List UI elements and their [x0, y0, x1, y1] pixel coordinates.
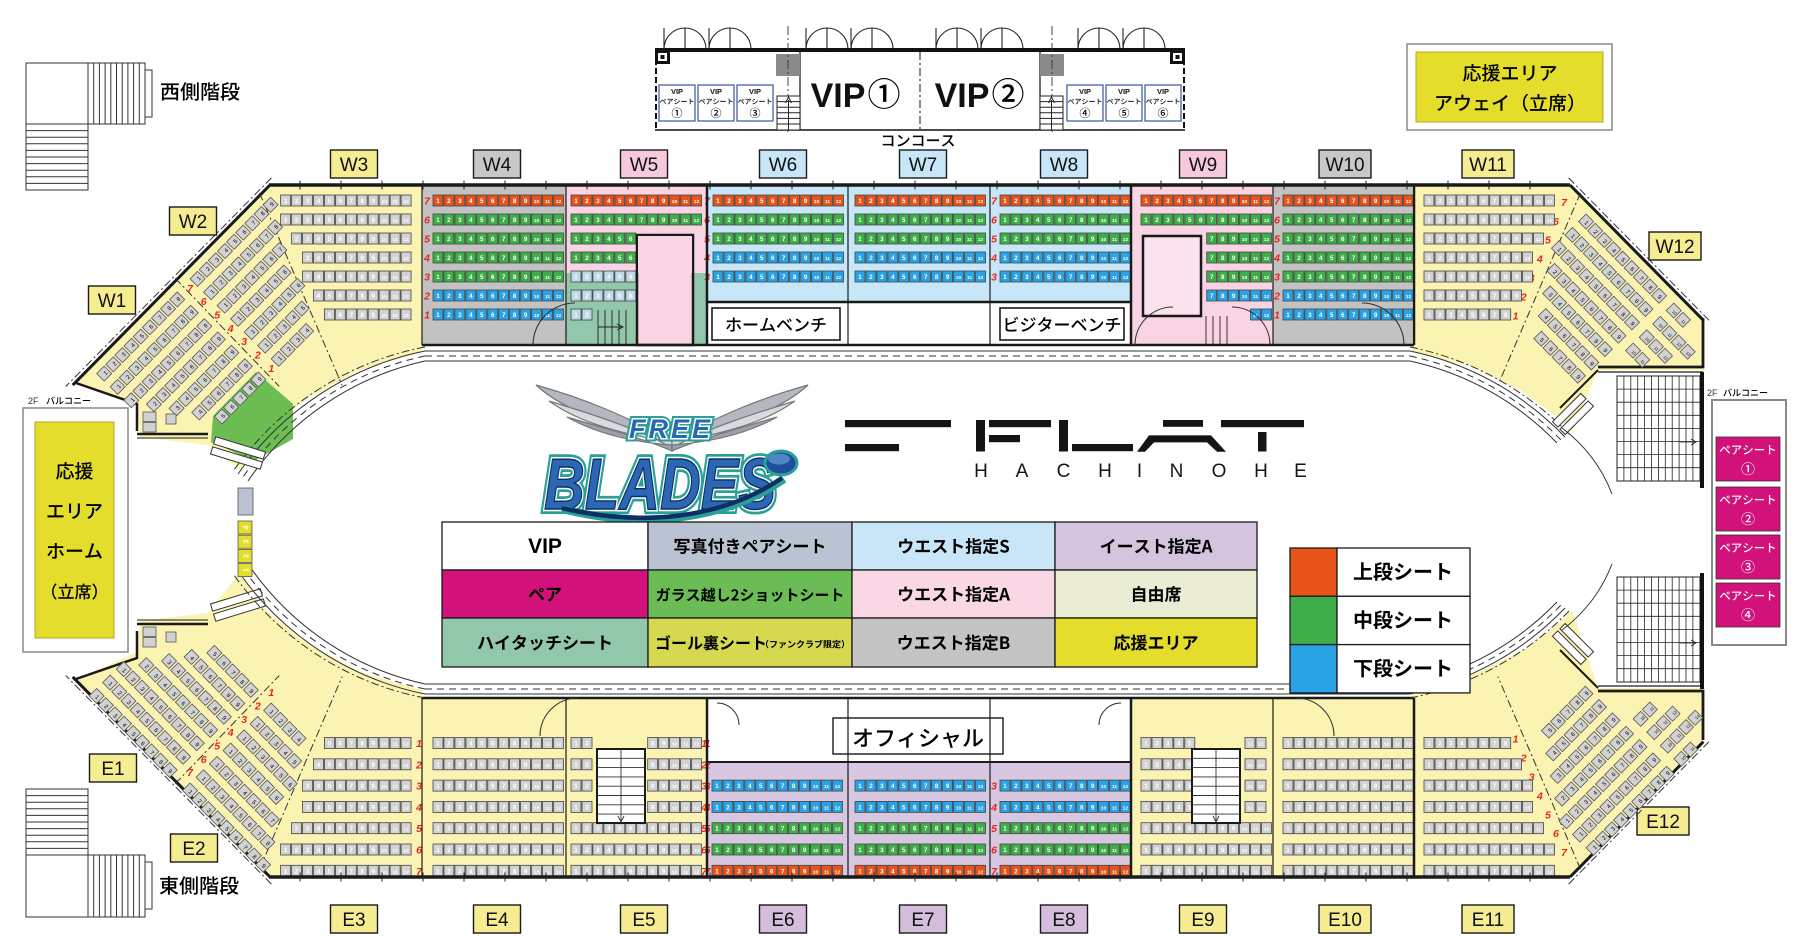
- svg-text:5: 5: [618, 868, 622, 875]
- svg-text:12: 12: [403, 742, 409, 748]
- svg-text:9: 9: [371, 847, 375, 854]
- svg-text:6: 6: [1341, 293, 1345, 300]
- svg-text:3: 3: [1449, 198, 1453, 205]
- svg-text:6: 6: [1341, 217, 1345, 224]
- svg-text:6: 6: [629, 255, 633, 262]
- svg-text:4: 4: [607, 274, 611, 281]
- svg-text:11: 11: [393, 742, 398, 748]
- svg-text:8: 8: [513, 255, 517, 262]
- svg-text:12: 12: [1123, 784, 1129, 790]
- svg-text:7: 7: [924, 868, 928, 875]
- svg-text:10: 10: [1384, 275, 1390, 281]
- svg-text:3: 3: [1449, 826, 1453, 833]
- svg-text:9: 9: [1232, 868, 1236, 875]
- svg-text:5: 5: [1471, 198, 1475, 205]
- svg-text:3: 3: [306, 826, 310, 833]
- svg-text:9: 9: [371, 255, 375, 262]
- svg-text:2: 2: [1297, 274, 1301, 281]
- svg-text:8: 8: [935, 217, 939, 224]
- svg-text:6: 6: [491, 217, 495, 224]
- svg-text:6: 6: [491, 293, 495, 300]
- svg-text:4: 4: [990, 253, 997, 265]
- svg-text:1: 1: [424, 310, 430, 322]
- svg-text:10: 10: [1242, 199, 1248, 205]
- svg-text:3: 3: [1166, 847, 1170, 854]
- svg-text:3: 3: [1449, 868, 1453, 875]
- svg-text:11: 11: [545, 784, 550, 790]
- svg-text:6: 6: [629, 236, 633, 243]
- svg-text:2: 2: [727, 274, 731, 281]
- svg-text:3: 3: [1308, 847, 1312, 854]
- svg-text:2: 2: [585, 255, 589, 262]
- svg-text:6: 6: [491, 255, 495, 262]
- svg-text:7: 7: [1069, 274, 1073, 281]
- svg-text:8: 8: [1504, 293, 1508, 300]
- svg-text:1: 1: [715, 868, 719, 875]
- svg-text:9: 9: [803, 868, 807, 875]
- svg-text:9: 9: [804, 198, 808, 205]
- svg-text:6: 6: [1341, 236, 1345, 243]
- svg-text:1: 1: [1286, 293, 1290, 300]
- svg-text:6: 6: [1482, 236, 1486, 243]
- svg-text:11: 11: [967, 805, 972, 811]
- svg-text:6: 6: [913, 217, 917, 224]
- svg-text:3: 3: [458, 293, 462, 300]
- svg-text:6: 6: [339, 293, 343, 300]
- svg-text:6: 6: [1058, 868, 1062, 875]
- svg-text:4: 4: [1319, 312, 1323, 319]
- svg-text:5: 5: [480, 236, 484, 243]
- svg-text:3: 3: [458, 762, 462, 769]
- svg-text:1: 1: [436, 741, 440, 748]
- svg-text:7: 7: [1352, 255, 1356, 262]
- svg-text:1: 1: [268, 363, 274, 375]
- svg-text:10: 10: [534, 784, 540, 790]
- svg-text:VIP: VIP: [671, 87, 683, 96]
- svg-text:6: 6: [416, 845, 422, 857]
- svg-text:10: 10: [1101, 848, 1107, 854]
- svg-text:7: 7: [924, 255, 928, 262]
- svg-text:10: 10: [534, 848, 540, 854]
- svg-text:3: 3: [458, 847, 462, 854]
- svg-text:12: 12: [403, 199, 409, 205]
- svg-text:10: 10: [956, 784, 962, 790]
- svg-text:9: 9: [524, 847, 528, 854]
- svg-text:5: 5: [1471, 783, 1475, 790]
- svg-text:11: 11: [393, 848, 398, 854]
- svg-text:7: 7: [1069, 868, 1073, 875]
- svg-text:3: 3: [458, 783, 462, 790]
- svg-text:6: 6: [491, 274, 495, 281]
- svg-text:10: 10: [1525, 805, 1531, 811]
- svg-text:4: 4: [891, 804, 895, 811]
- svg-text:9: 9: [1374, 868, 1378, 875]
- svg-text:11: 11: [545, 294, 550, 300]
- svg-text:3: 3: [880, 236, 884, 243]
- svg-text:12: 12: [1406, 294, 1412, 300]
- svg-text:12: 12: [1547, 199, 1553, 205]
- svg-text:7: 7: [640, 217, 644, 224]
- svg-text:4: 4: [1319, 198, 1323, 205]
- svg-text:6: 6: [491, 741, 495, 748]
- svg-text:2: 2: [1014, 783, 1018, 790]
- svg-text:11: 11: [1395, 199, 1400, 205]
- svg-text:9: 9: [371, 762, 375, 769]
- svg-text:4: 4: [317, 293, 321, 300]
- svg-text:12: 12: [978, 199, 984, 205]
- svg-text:10: 10: [534, 742, 540, 748]
- svg-text:11: 11: [1395, 869, 1400, 875]
- svg-text:5: 5: [1047, 847, 1051, 854]
- svg-text:O: O: [1212, 461, 1227, 482]
- svg-text:10: 10: [1525, 827, 1531, 833]
- svg-text:E9: E9: [1191, 910, 1214, 931]
- svg-text:9: 9: [662, 847, 666, 854]
- svg-text:6: 6: [491, 804, 495, 811]
- svg-text:6: 6: [1482, 804, 1486, 811]
- svg-text:11: 11: [1112, 218, 1117, 224]
- svg-text:11: 11: [825, 218, 830, 224]
- svg-text:12: 12: [835, 784, 841, 790]
- svg-text:4: 4: [227, 323, 234, 335]
- svg-text:1: 1: [1144, 198, 1148, 205]
- svg-text:7: 7: [781, 826, 785, 833]
- svg-text:1: 1: [1286, 783, 1290, 790]
- svg-text:10: 10: [1242, 827, 1248, 833]
- svg-text:1: 1: [1003, 217, 1007, 224]
- svg-text:7: 7: [1069, 236, 1073, 243]
- svg-text:FREE: FREE: [629, 414, 713, 444]
- svg-text:6: 6: [491, 826, 495, 833]
- svg-text:9: 9: [1515, 826, 1519, 833]
- svg-text:10: 10: [1242, 848, 1248, 854]
- svg-text:11: 11: [1253, 275, 1258, 281]
- svg-text:11: 11: [1395, 237, 1400, 243]
- svg-text:9: 9: [1515, 198, 1519, 205]
- svg-text:8: 8: [1221, 217, 1225, 224]
- svg-text:8: 8: [1363, 804, 1367, 811]
- svg-text:8: 8: [1363, 741, 1367, 748]
- svg-text:9: 9: [1515, 236, 1519, 243]
- svg-text:6: 6: [991, 215, 997, 227]
- svg-text:E1: E1: [101, 759, 124, 780]
- svg-text:12: 12: [556, 256, 562, 262]
- svg-text:5: 5: [480, 255, 484, 262]
- svg-text:1: 1: [574, 741, 578, 748]
- svg-text:5: 5: [991, 234, 997, 246]
- svg-text:1: 1: [436, 804, 440, 811]
- svg-text:5: 5: [328, 198, 332, 205]
- svg-text:4: 4: [1460, 236, 1464, 243]
- svg-text:10: 10: [814, 199, 820, 205]
- svg-text:4: 4: [748, 804, 752, 811]
- svg-text:3: 3: [880, 804, 884, 811]
- svg-text:4: 4: [317, 217, 321, 224]
- svg-text:11: 11: [545, 199, 550, 205]
- svg-text:6: 6: [770, 826, 774, 833]
- svg-text:12: 12: [556, 848, 562, 854]
- svg-text:7: 7: [640, 198, 644, 205]
- svg-text:1: 1: [574, 198, 578, 205]
- svg-text:4: 4: [317, 762, 321, 769]
- svg-text:6: 6: [771, 217, 775, 224]
- svg-text:4: 4: [1319, 847, 1323, 854]
- svg-text:2: 2: [726, 847, 730, 854]
- svg-text:12: 12: [403, 256, 409, 262]
- svg-text:3: 3: [738, 274, 742, 281]
- svg-text:5: 5: [214, 741, 220, 753]
- svg-text:7: 7: [350, 826, 354, 833]
- svg-text:11: 11: [1395, 742, 1400, 748]
- svg-text:12: 12: [1123, 218, 1129, 224]
- svg-text:9: 9: [1091, 217, 1095, 224]
- svg-text:6: 6: [1341, 255, 1345, 262]
- svg-text:2: 2: [585, 762, 589, 769]
- svg-text:4: 4: [1460, 741, 1464, 748]
- svg-text:5: 5: [1471, 847, 1475, 854]
- svg-text:11: 11: [967, 848, 972, 854]
- svg-text:12: 12: [694, 848, 700, 854]
- svg-text:10: 10: [534, 199, 540, 205]
- svg-text:8: 8: [1221, 236, 1225, 243]
- svg-text:E2: E2: [182, 839, 205, 860]
- svg-text:6: 6: [629, 198, 633, 205]
- svg-text:9: 9: [1232, 847, 1236, 854]
- svg-text:4: 4: [1177, 868, 1181, 875]
- svg-text:1: 1: [1274, 310, 1280, 322]
- svg-text:1: 1: [858, 868, 862, 875]
- svg-text:6: 6: [1482, 293, 1486, 300]
- svg-text:10: 10: [1525, 218, 1531, 224]
- svg-text:7: 7: [924, 217, 928, 224]
- svg-text:8: 8: [513, 804, 517, 811]
- svg-text:1: 1: [1286, 236, 1290, 243]
- svg-text:3: 3: [991, 781, 997, 793]
- svg-text:7: 7: [350, 236, 354, 243]
- svg-text:2: 2: [1297, 217, 1301, 224]
- svg-text:11: 11: [1112, 805, 1117, 811]
- svg-text:11: 11: [393, 218, 398, 224]
- svg-text:12: 12: [1264, 848, 1270, 854]
- svg-text:2: 2: [1297, 741, 1301, 748]
- svg-text:1: 1: [716, 274, 720, 281]
- svg-text:12: 12: [1406, 763, 1412, 769]
- svg-text:12: 12: [1258, 742, 1264, 748]
- svg-text:10: 10: [814, 256, 820, 262]
- svg-text:8: 8: [360, 783, 364, 790]
- svg-text:1: 1: [436, 762, 440, 769]
- svg-text:1: 1: [1286, 312, 1290, 319]
- svg-text:11: 11: [683, 869, 688, 875]
- svg-text:7: 7: [1352, 826, 1356, 833]
- svg-text:9: 9: [946, 868, 950, 875]
- svg-text:2: 2: [869, 804, 873, 811]
- svg-text:10: 10: [1384, 313, 1390, 319]
- svg-text:1: 1: [1144, 804, 1148, 811]
- svg-text:12: 12: [1406, 742, 1412, 748]
- svg-text:4: 4: [1036, 236, 1040, 243]
- svg-text:5: 5: [1330, 255, 1334, 262]
- svg-text:5: 5: [618, 293, 622, 300]
- svg-text:4: 4: [607, 826, 611, 833]
- svg-text:12: 12: [978, 275, 984, 281]
- svg-text:1: 1: [436, 312, 440, 319]
- svg-text:1: 1: [1427, 847, 1431, 854]
- svg-text:4: 4: [1319, 274, 1323, 281]
- svg-text:5: 5: [328, 847, 332, 854]
- svg-text:8: 8: [1080, 274, 1084, 281]
- svg-text:10: 10: [813, 827, 819, 833]
- svg-text:11: 11: [545, 256, 550, 262]
- svg-text:1: 1: [1003, 198, 1007, 205]
- svg-text:12: 12: [1264, 237, 1270, 243]
- svg-text:12: 12: [978, 848, 984, 854]
- svg-text:8: 8: [935, 198, 939, 205]
- svg-text:5: 5: [618, 826, 622, 833]
- svg-text:4: 4: [1177, 198, 1181, 205]
- svg-text:4: 4: [749, 236, 753, 243]
- svg-text:9: 9: [1374, 198, 1378, 205]
- svg-text:5: 5: [1330, 826, 1334, 833]
- svg-text:2: 2: [869, 255, 873, 262]
- svg-text:10: 10: [813, 784, 819, 790]
- svg-text:10: 10: [956, 218, 962, 224]
- svg-text:11: 11: [967, 218, 972, 224]
- svg-text:12: 12: [403, 827, 409, 833]
- svg-text:2: 2: [1297, 847, 1301, 854]
- svg-text:3: 3: [306, 847, 310, 854]
- svg-text:10: 10: [1242, 275, 1248, 281]
- svg-text:8: 8: [1080, 868, 1084, 875]
- svg-text:12: 12: [978, 784, 984, 790]
- svg-text:3: 3: [737, 826, 741, 833]
- svg-text:1: 1: [1427, 783, 1431, 790]
- svg-text:11: 11: [1112, 237, 1117, 243]
- svg-text:3: 3: [1308, 293, 1312, 300]
- svg-text:9: 9: [1374, 804, 1378, 811]
- svg-text:11: 11: [545, 218, 550, 224]
- svg-text:10: 10: [813, 848, 819, 854]
- svg-text:12: 12: [1547, 869, 1553, 875]
- svg-text:2F: 2F: [28, 396, 39, 406]
- svg-text:5: 5: [214, 310, 220, 322]
- svg-text:5: 5: [1047, 274, 1051, 281]
- svg-text:11: 11: [967, 869, 972, 875]
- svg-text:5: 5: [1047, 236, 1051, 243]
- svg-text:6: 6: [1199, 826, 1203, 833]
- svg-text:4: 4: [748, 868, 752, 875]
- svg-text:5: 5: [759, 847, 763, 854]
- svg-text:11: 11: [545, 237, 550, 243]
- svg-text:4: 4: [317, 826, 321, 833]
- svg-text:5: 5: [759, 783, 763, 790]
- svg-text:5: 5: [1188, 198, 1192, 205]
- svg-text:11: 11: [683, 805, 688, 811]
- svg-text:6: 6: [1341, 826, 1345, 833]
- svg-text:11: 11: [1112, 827, 1117, 833]
- svg-text:2: 2: [447, 293, 451, 300]
- svg-text:9: 9: [662, 868, 666, 875]
- svg-text:8: 8: [935, 274, 939, 281]
- svg-text:1: 1: [858, 804, 862, 811]
- svg-text:4: 4: [891, 783, 895, 790]
- svg-text:5: 5: [1471, 762, 1475, 769]
- svg-text:12: 12: [1547, 218, 1553, 224]
- svg-text:12: 12: [556, 313, 562, 319]
- svg-text:11: 11: [683, 742, 688, 748]
- svg-text:1: 1: [574, 274, 578, 281]
- svg-text:5: 5: [1545, 809, 1551, 821]
- svg-text:9: 9: [1232, 293, 1236, 300]
- svg-text:9: 9: [662, 741, 666, 748]
- svg-text:2: 2: [1297, 826, 1301, 833]
- svg-text:7: 7: [782, 274, 786, 281]
- svg-text:2: 2: [585, 293, 589, 300]
- svg-text:10: 10: [956, 827, 962, 833]
- svg-text:11: 11: [393, 805, 398, 811]
- svg-text:8: 8: [1504, 217, 1508, 224]
- svg-text:12: 12: [835, 805, 841, 811]
- svg-text:10: 10: [956, 256, 962, 262]
- svg-text:11: 11: [1112, 869, 1117, 875]
- svg-text:11: 11: [967, 827, 972, 833]
- svg-text:1: 1: [858, 274, 862, 281]
- svg-text:9: 9: [1374, 783, 1378, 790]
- svg-text:8: 8: [360, 741, 364, 748]
- svg-text:5: 5: [328, 255, 332, 262]
- svg-text:5: 5: [328, 804, 332, 811]
- svg-text:7: 7: [502, 804, 506, 811]
- svg-text:2: 2: [1297, 198, 1301, 205]
- svg-text:8: 8: [651, 847, 655, 854]
- svg-text:12: 12: [835, 848, 841, 854]
- svg-text:8: 8: [1080, 783, 1084, 790]
- svg-text:3: 3: [1166, 826, 1170, 833]
- svg-text:6: 6: [1341, 274, 1345, 281]
- svg-text:5: 5: [328, 293, 332, 300]
- svg-text:3: 3: [1308, 236, 1312, 243]
- svg-text:2: 2: [727, 198, 731, 205]
- svg-text:11: 11: [545, 313, 550, 319]
- svg-text:6: 6: [629, 293, 633, 300]
- svg-text:8: 8: [1504, 274, 1508, 281]
- svg-text:4: 4: [1460, 826, 1464, 833]
- svg-text:1: 1: [1427, 198, 1431, 205]
- svg-text:1: 1: [436, 847, 440, 854]
- svg-text:11: 11: [967, 275, 972, 281]
- svg-text:2: 2: [295, 217, 299, 224]
- svg-text:9: 9: [1374, 826, 1378, 833]
- svg-text:6: 6: [491, 312, 495, 319]
- svg-text:9: 9: [1232, 826, 1236, 833]
- svg-text:8: 8: [1080, 236, 1084, 243]
- svg-text:8: 8: [1504, 762, 1508, 769]
- svg-text:7: 7: [350, 741, 354, 748]
- svg-text:10: 10: [1384, 763, 1390, 769]
- svg-text:4: 4: [1273, 253, 1280, 265]
- svg-text:6: 6: [491, 783, 495, 790]
- svg-text:6: 6: [771, 255, 775, 262]
- svg-text:5: 5: [480, 868, 484, 875]
- svg-text:6: 6: [339, 236, 343, 243]
- svg-text:6: 6: [491, 868, 495, 875]
- svg-text:5: 5: [1471, 741, 1475, 748]
- svg-text:5: 5: [1330, 293, 1334, 300]
- svg-text:12: 12: [694, 805, 700, 811]
- svg-text:4: 4: [469, 293, 473, 300]
- svg-text:12: 12: [694, 763, 700, 769]
- svg-text:11: 11: [824, 805, 829, 811]
